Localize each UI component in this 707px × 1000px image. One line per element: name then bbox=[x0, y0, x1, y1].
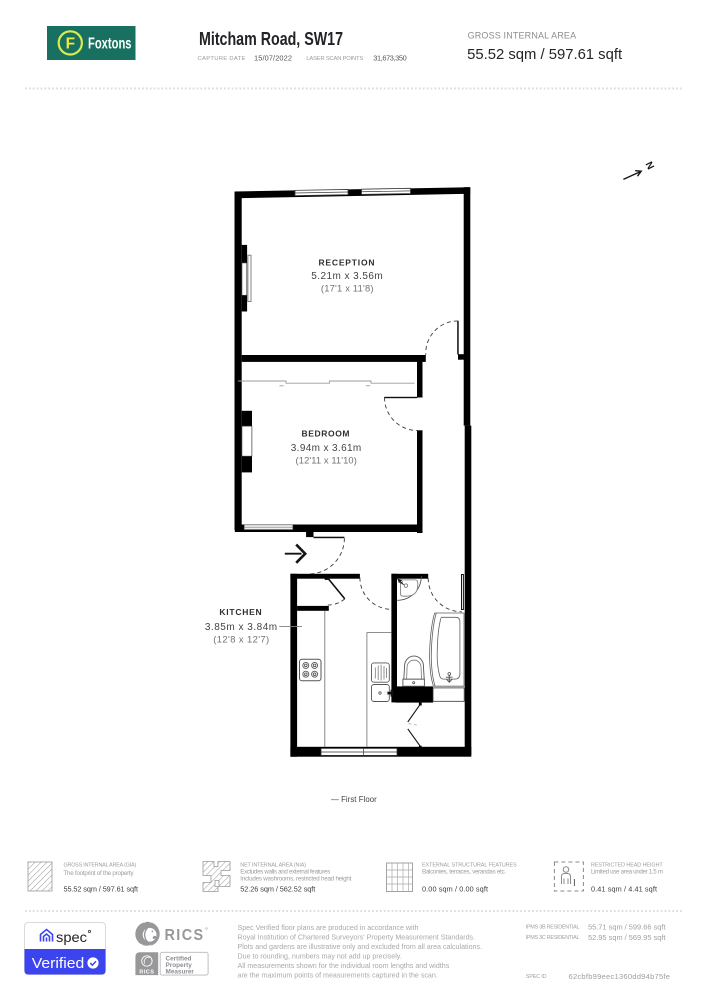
svg-text:Plots and gardens are illustra: Plots and gardens are illustrative only … bbox=[238, 943, 483, 951]
svg-text:— First Floor: — First Floor bbox=[331, 795, 378, 804]
svg-text:(17'1 x 11'8): (17'1 x 11'8) bbox=[321, 283, 374, 294]
svg-text:I: I bbox=[573, 878, 576, 889]
svg-text:(12'8 x 12'7): (12'8 x 12'7) bbox=[213, 634, 270, 645]
svg-text:55.52 sqm / 597.61 sqft: 55.52 sqm / 597.61 sqft bbox=[467, 47, 622, 63]
svg-text:RECEPTION: RECEPTION bbox=[319, 257, 377, 267]
svg-text:GROSS INTERNAL AREA: GROSS INTERNAL AREA bbox=[468, 30, 577, 40]
svg-text:52.95 sqm / 569.95 sqft: 52.95 sqm / 569.95 sqft bbox=[588, 933, 666, 942]
svg-text:0.41 sqm / 4.41 sqft: 0.41 sqm / 4.41 sqft bbox=[591, 885, 657, 894]
svg-text:Verified: Verified bbox=[32, 956, 85, 972]
svg-text:Due to rounding, numbers may n: Due to rounding, numbers may not add up … bbox=[238, 953, 402, 961]
svg-text:Limited use area under 1.5 m: Limited use area under 1.5 m bbox=[591, 869, 663, 876]
svg-text:55.71 sqm / 599.66 sqft: 55.71 sqm / 599.66 sqft bbox=[588, 923, 666, 932]
svg-text:Spec Verified floor plans are: Spec Verified floor plans are produced i… bbox=[238, 924, 419, 932]
svg-text:Excludes walls and external fe: Excludes walls and external features bbox=[240, 869, 330, 876]
svg-text:Measurer: Measurer bbox=[166, 969, 195, 976]
svg-text:RICS: RICS bbox=[165, 927, 205, 944]
svg-text:Mitcham Road, SW17: Mitcham Road, SW17 bbox=[199, 29, 343, 49]
svg-text:CAPTURE DATE: CAPTURE DATE bbox=[198, 56, 246, 62]
svg-text:GROSS INTERNAL AREA (GIA): GROSS INTERNAL AREA (GIA) bbox=[64, 863, 137, 869]
svg-text:are the maximum points of meas: are the maximum points of measurements c… bbox=[238, 972, 438, 980]
svg-text:IPMS 3C RESIDENTIAL: IPMS 3C RESIDENTIAL bbox=[526, 935, 580, 941]
svg-text:BEDROOM: BEDROOM bbox=[302, 429, 352, 439]
svg-text:RICS: RICS bbox=[139, 969, 154, 975]
svg-text:62cbfb99eec1360dd94b75fe: 62cbfb99eec1360dd94b75fe bbox=[569, 972, 671, 981]
svg-text:3.85m x 3.84m: 3.85m x 3.84m bbox=[205, 622, 278, 633]
svg-text:F: F bbox=[66, 36, 75, 53]
svg-text:The footprint of the property: The footprint of the property bbox=[64, 870, 135, 877]
svg-text:15/07/2022: 15/07/2022 bbox=[254, 53, 292, 62]
svg-text:Includes washrooms, restricted: Includes washrooms, restricted head heig… bbox=[240, 876, 351, 883]
svg-text:55.52 sqm / 597.61 sqft: 55.52 sqm / 597.61 sqft bbox=[64, 885, 139, 894]
svg-text:All measurements shown for the: All measurements shown for the individua… bbox=[238, 962, 450, 970]
svg-text:spec: spec bbox=[56, 929, 87, 945]
svg-text:Royal Institution of Chartered: Royal Institution of Chartered Surveyors… bbox=[238, 934, 476, 942]
svg-text:52.26 sqm / 562.52 sqft: 52.26 sqm / 562.52 sqft bbox=[240, 885, 315, 894]
svg-text:Balconies, terraces, verandas: Balconies, terraces, verandas etc. bbox=[422, 869, 506, 876]
svg-text:SPEC ID: SPEC ID bbox=[526, 974, 547, 980]
svg-text:(12'11 x 11'10): (12'11 x 11'10) bbox=[296, 455, 358, 466]
svg-text:LASER SCAN POINTS: LASER SCAN POINTS bbox=[306, 56, 363, 62]
svg-text:N: N bbox=[643, 160, 656, 171]
svg-text:31,673,350: 31,673,350 bbox=[373, 53, 406, 62]
svg-text:5.21m x 3.56m: 5.21m x 3.56m bbox=[311, 271, 383, 282]
svg-text:3.94m x 3.61m: 3.94m x 3.61m bbox=[291, 443, 363, 454]
svg-text:Foxtons: Foxtons bbox=[88, 36, 132, 53]
svg-text:IPMS 3B RESIDENTIAL: IPMS 3B RESIDENTIAL bbox=[526, 925, 580, 931]
svg-text:KITCHEN: KITCHEN bbox=[219, 607, 263, 617]
svg-text:0.00 sqm / 0.00 sqft: 0.00 sqm / 0.00 sqft bbox=[422, 885, 488, 894]
